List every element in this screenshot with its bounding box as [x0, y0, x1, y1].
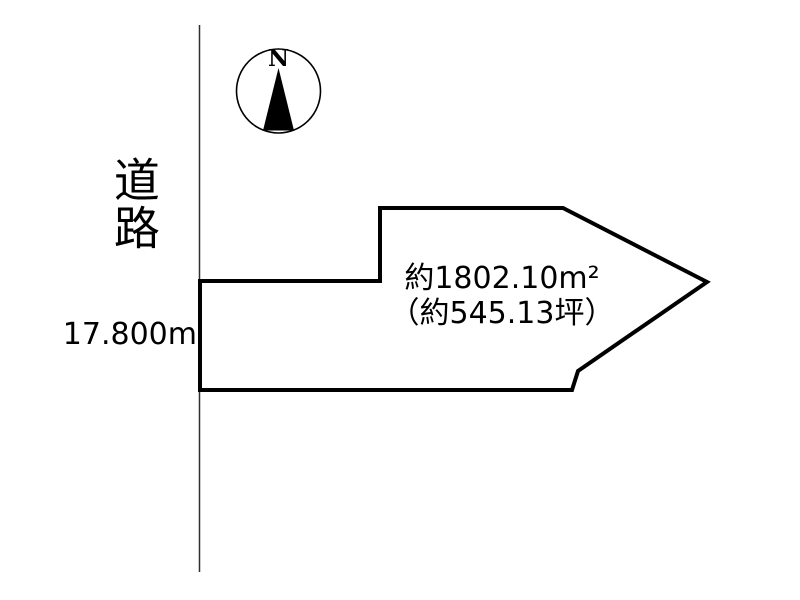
- area-square-meters: 約1802.10m²: [386, 261, 618, 296]
- compass-needle-icon: [263, 68, 294, 131]
- area-label: 約1802.10m² （約545.13坪）: [386, 261, 618, 331]
- frontage-measurement: 17.800m: [40, 319, 197, 351]
- area-tsubo: （約545.13坪）: [386, 296, 618, 331]
- compass-north-label: N: [261, 45, 296, 72]
- road-label: 道路: [110, 156, 157, 252]
- land-plot-diagram: N 道路 17.800m 約1802.10m² （約545.13坪）: [0, 0, 800, 600]
